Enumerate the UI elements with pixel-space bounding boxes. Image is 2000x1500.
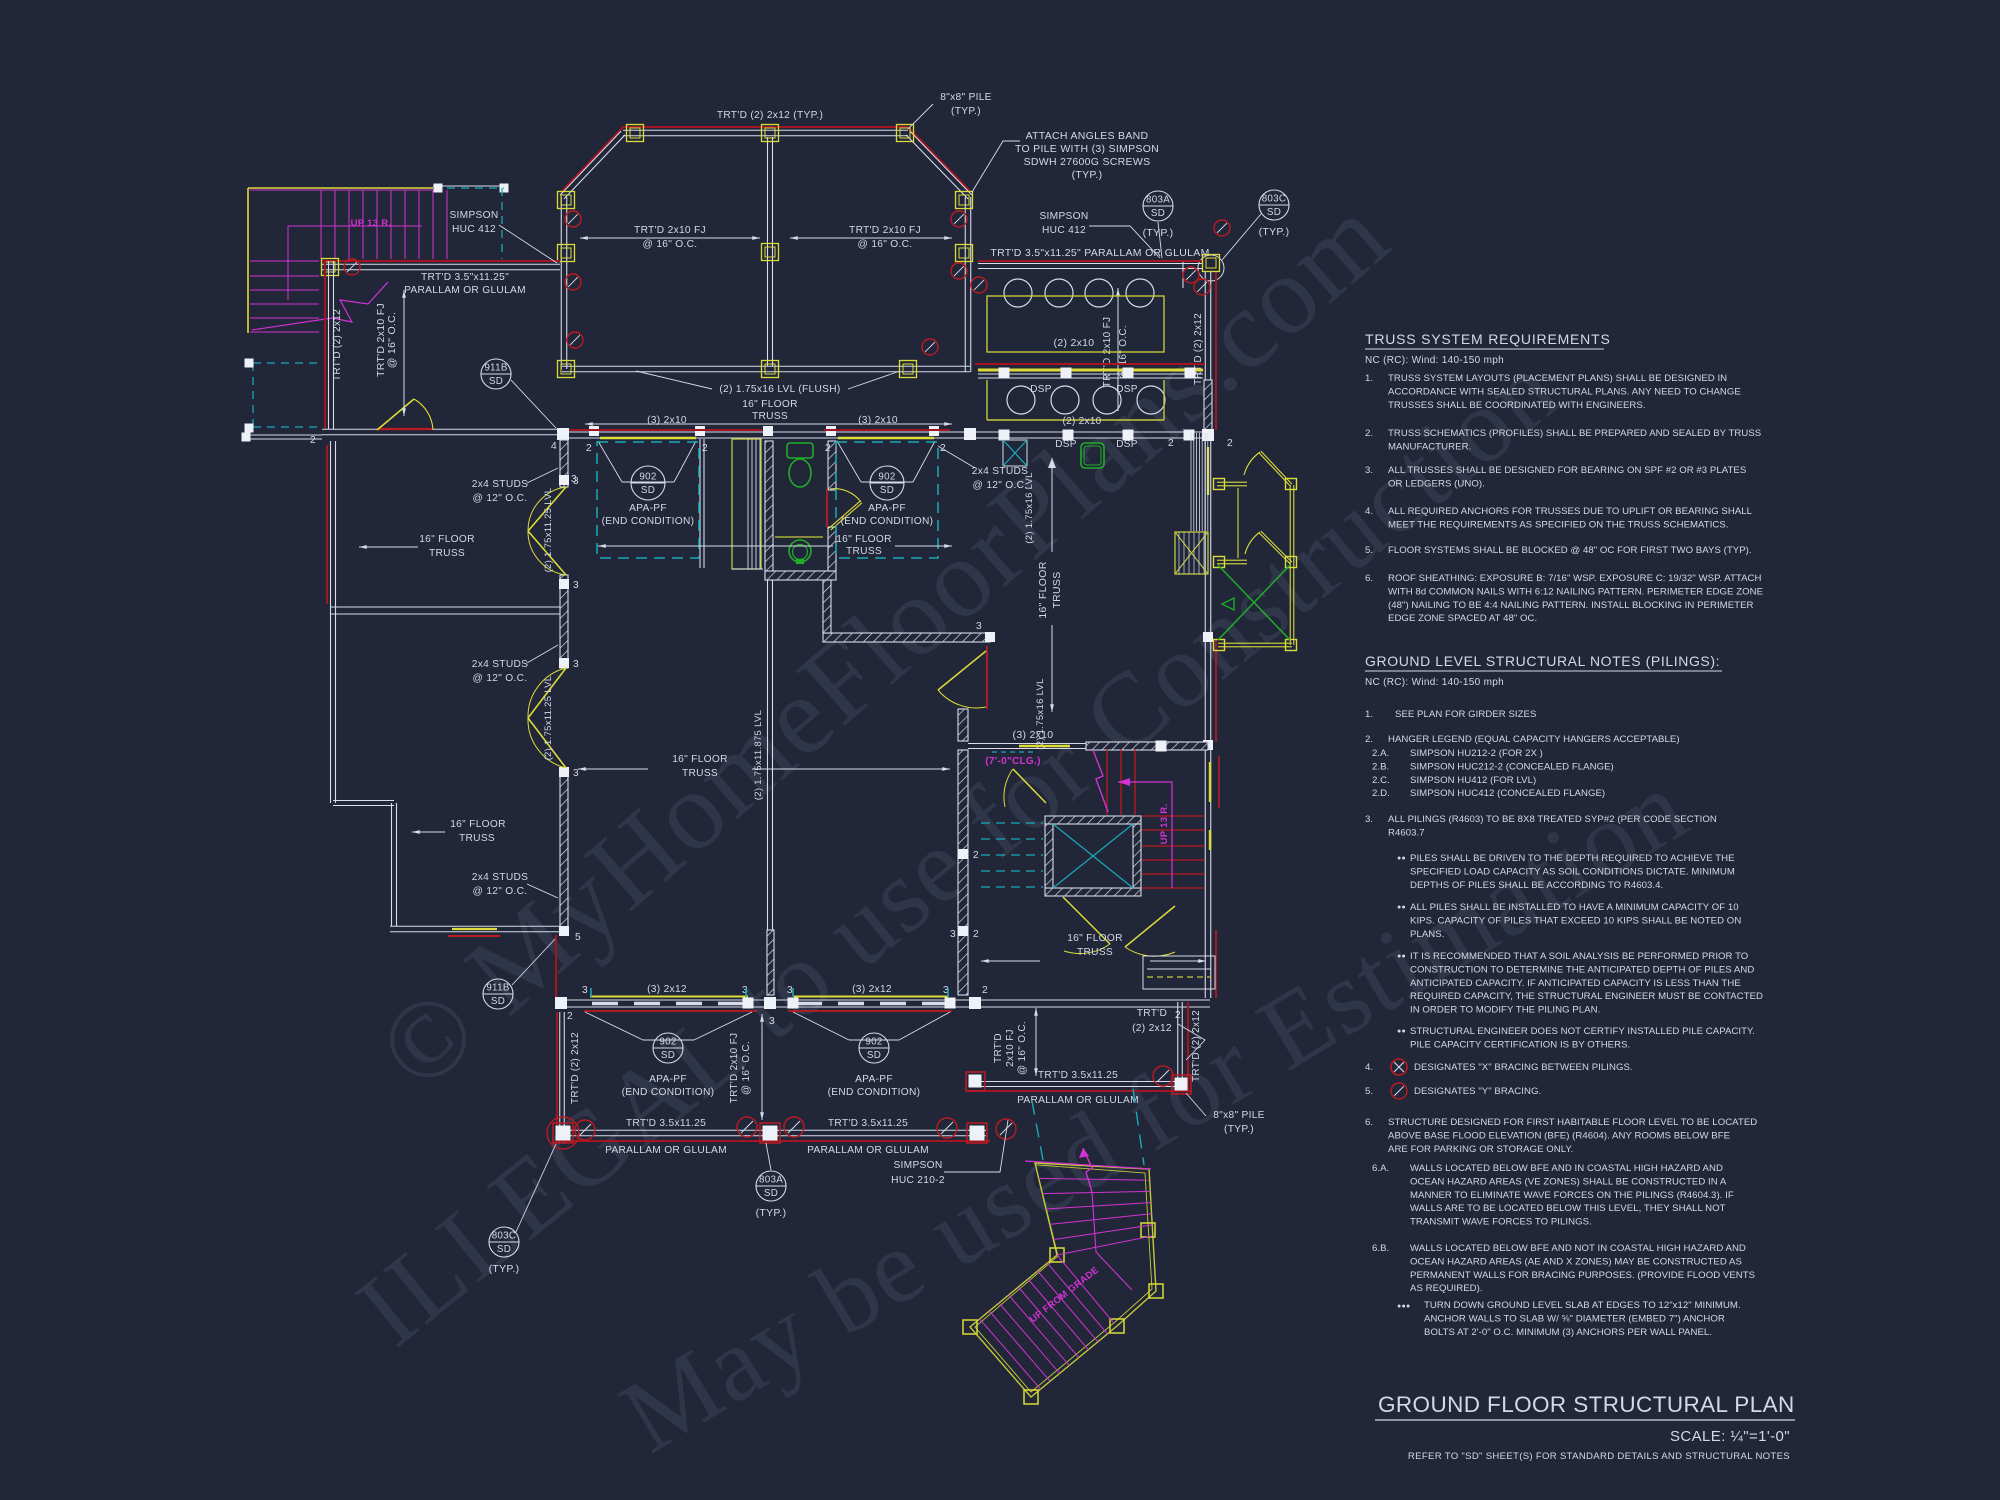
svg-text:STRUCTURE DESIGNED FOR FIRST H: STRUCTURE DESIGNED FOR FIRST HABITABLE F… — [1388, 1117, 1757, 1128]
svg-text:6.B.: 6.B. — [1372, 1243, 1389, 1254]
svg-text:SD: SD — [1267, 207, 1281, 218]
svg-text:2: 2 — [1227, 437, 1233, 449]
svg-text:TRUSS SCHEMATICS (PROFILES) SH: TRUSS SCHEMATICS (PROFILES) SHALL BE PRE… — [1388, 428, 1761, 439]
svg-text:902: 902 — [878, 472, 895, 483]
svg-text:TRUSS: TRUSS — [682, 768, 718, 779]
svg-text:4: 4 — [551, 440, 557, 452]
svg-text:TRUSS SYSTEM REQUIREMENTS: TRUSS SYSTEM REQUIREMENTS — [1365, 331, 1611, 347]
svg-text:●●: ●● — [1397, 855, 1406, 862]
svg-text:ALL TRUSSES SHALL BE DESIGNED: ALL TRUSSES SHALL BE DESIGNED FOR BEARIN… — [1388, 465, 1746, 476]
svg-text:6.: 6. — [1365, 1117, 1373, 1128]
svg-text:(TYP.): (TYP.) — [951, 106, 981, 117]
svg-text:3: 3 — [742, 984, 748, 996]
svg-text:2: 2 — [1175, 1009, 1181, 1021]
svg-text:(END CONDITION): (END CONDITION) — [828, 1087, 921, 1098]
svg-text:803C: 803C — [1262, 194, 1287, 205]
svg-text:8"x8" PILE: 8"x8" PILE — [940, 92, 992, 103]
svg-text:WALLS ARE TO BE LOCATED BELOW: WALLS ARE TO BE LOCATED BELOW THIS LEVEL… — [1410, 1203, 1726, 1214]
svg-text:OR LEDGERS (UNO).: OR LEDGERS (UNO). — [1388, 478, 1485, 489]
svg-text:APA-PF: APA-PF — [855, 1074, 893, 1085]
svg-text:ALL PILES SHALL BE INSTALLED T: ALL PILES SHALL BE INSTALLED TO HAVE A M… — [1410, 902, 1739, 913]
svg-text:ALL PILINGS (R4603) TO BE 8X8: ALL PILINGS (R4603) TO BE 8X8 TREATED SY… — [1388, 814, 1717, 825]
svg-text:SD: SD — [867, 1050, 881, 1061]
svg-text:PARALLAM OR GLULAM: PARALLAM OR GLULAM — [1017, 1095, 1139, 1106]
svg-text:(3) 2x10: (3) 2x10 — [1013, 729, 1054, 741]
svg-text:2.: 2. — [1365, 734, 1373, 745]
svg-text:16" FLOOR: 16" FLOOR — [1067, 933, 1123, 944]
svg-text:(2) 2x10: (2) 2x10 — [1054, 337, 1095, 349]
svg-text:(3) 2x12: (3) 2x12 — [647, 984, 687, 995]
svg-text:TRUSS: TRUSS — [1051, 571, 1063, 608]
svg-text:DSP: DSP — [1116, 439, 1137, 450]
svg-text:2: 2 — [310, 435, 316, 446]
svg-text:ABOVE BASE FLOOD ELEVATION (BF: ABOVE BASE FLOOD ELEVATION (BFE) (R4604)… — [1388, 1130, 1730, 1141]
svg-text:PARALLAM OR GLULAM: PARALLAM OR GLULAM — [404, 285, 526, 296]
svg-text:UP 13 R.: UP 13 R. — [351, 218, 392, 229]
svg-text:(TYP.): (TYP.) — [756, 1207, 787, 1219]
svg-text:GROUND LEVEL STRUCTURAL NOTES: GROUND LEVEL STRUCTURAL NOTES (PILINGS): — [1365, 653, 1720, 669]
svg-text:@ 12" O.C.: @ 12" O.C. — [473, 673, 528, 684]
svg-text:2: 2 — [1168, 437, 1174, 449]
svg-text:SD: SD — [661, 1050, 675, 1061]
svg-text:HUC 210-2: HUC 210-2 — [891, 1175, 945, 1186]
svg-text:●●: ●● — [1397, 953, 1406, 960]
svg-text:2.D.: 2.D. — [1372, 788, 1390, 799]
svg-text:TRT'D: TRT'D — [1137, 1008, 1167, 1019]
svg-text:@ 12" O.C.: @ 12" O.C. — [473, 493, 528, 504]
svg-text:3.: 3. — [1365, 465, 1373, 476]
svg-text:16" FLOOR: 16" FLOOR — [450, 819, 506, 830]
svg-text:2.C.: 2.C. — [1372, 775, 1390, 786]
svg-text:2x4 STUDS: 2x4 STUDS — [472, 872, 528, 883]
svg-text:ANTICIPATED CAPACITY. IF ANTIC: ANTICIPATED CAPACITY. IF ANTICIPATED CAP… — [1410, 978, 1741, 989]
svg-text:GROUND FLOOR STRUCTURAL PLAN: GROUND FLOOR STRUCTURAL PLAN — [1378, 1392, 1795, 1417]
svg-text:TRT'D 3.5x11.25: TRT'D 3.5x11.25 — [828, 1118, 908, 1129]
svg-text:TRT'D (2) 2x12 (TYP.): TRT'D (2) 2x12 (TYP.) — [717, 110, 823, 121]
svg-text:5.: 5. — [1365, 545, 1373, 556]
svg-text:2: 2 — [567, 1010, 573, 1022]
svg-text:CONSTRUCTION TO DETERMINE THE: CONSTRUCTION TO DETERMINE THE ANTICIPATE… — [1410, 964, 1754, 975]
svg-text:EDGE ZONE SPACED AT 48" OC.: EDGE ZONE SPACED AT 48" OC. — [1388, 613, 1537, 624]
svg-text:902: 902 — [639, 472, 656, 483]
svg-text:KIPS. CAPACITY OF PILES THAT E: KIPS. CAPACITY OF PILES THAT EXCEED 10 K… — [1410, 915, 1741, 926]
svg-text:2: 2 — [586, 442, 592, 454]
svg-text:4.: 4. — [1365, 1062, 1373, 1073]
svg-text:SD: SD — [1151, 208, 1165, 219]
svg-text:PARALLAM OR GLULAM: PARALLAM OR GLULAM — [807, 1145, 929, 1156]
svg-text:@ 16" O.C.: @ 16" O.C. — [741, 1041, 752, 1095]
svg-text:SD: SD — [491, 996, 505, 1007]
svg-text:2.: 2. — [1365, 428, 1373, 439]
svg-text:SCALE: ¼"=1'-0": SCALE: ¼"=1'-0" — [1670, 1428, 1790, 1445]
svg-text:SD: SD — [641, 485, 655, 496]
svg-text:(END CONDITION): (END CONDITION) — [622, 1087, 715, 1098]
svg-text:TRUSS: TRUSS — [459, 833, 495, 844]
svg-text:911B: 911B — [486, 983, 510, 994]
svg-text:SD: SD — [764, 1188, 778, 1199]
svg-text:SIMPSON HUC412 (CONCEALED FLAN: SIMPSON HUC412 (CONCEALED FLANGE) — [1410, 788, 1605, 799]
svg-text:SPECIFIED LOAD CAPACITY AS SOI: SPECIFIED LOAD CAPACITY AS SOIL CONDITIO… — [1410, 866, 1735, 877]
svg-text:16" FLOOR: 16" FLOOR — [836, 534, 892, 545]
svg-text:SD: SD — [497, 1244, 511, 1255]
svg-text:3: 3 — [769, 1015, 775, 1027]
svg-text:SEE PLAN FOR GIRDER SIZES: SEE PLAN FOR GIRDER SIZES — [1395, 709, 1536, 720]
svg-text:FLOOR SYSTEMS SHALL BE BLOCKED: FLOOR SYSTEMS SHALL BE BLOCKED @ 48" OC … — [1388, 545, 1752, 556]
svg-text:5.: 5. — [1365, 1086, 1373, 1097]
svg-text:2: 2 — [940, 442, 946, 454]
svg-text:●●: ●● — [1397, 1028, 1406, 1035]
svg-text:2.B.: 2.B. — [1372, 761, 1389, 772]
svg-text:6.A.: 6.A. — [1372, 1163, 1389, 1174]
svg-text:@ 12" O.C.: @ 12" O.C. — [973, 480, 1028, 491]
svg-text:MANUFACTURER.: MANUFACTURER. — [1388, 441, 1471, 452]
svg-text:(2) 1.75x11.25 LVL: (2) 1.75x11.25 LVL — [543, 488, 554, 573]
svg-text:2: 2 — [702, 442, 708, 454]
svg-text:TO PILE WITH (3) SIMPSON: TO PILE WITH (3) SIMPSON — [1015, 143, 1159, 155]
svg-text:SD: SD — [489, 376, 503, 387]
svg-text:●●: ●● — [1397, 904, 1406, 911]
svg-text:TRT'D 3.5x11.25: TRT'D 3.5x11.25 — [626, 1118, 706, 1129]
svg-text:TRT'D (2) 2x12: TRT'D (2) 2x12 — [332, 309, 343, 381]
svg-text:911B: 911B — [484, 363, 508, 374]
svg-text:TRT'D 2x10 FJ: TRT'D 2x10 FJ — [849, 225, 921, 236]
svg-text:SIMPSON HUC212-2 (CONCEALED FL: SIMPSON HUC212-2 (CONCEALED FLANGE) — [1410, 761, 1614, 772]
svg-text:IN ORDER TO MODIFY THE PILING: IN ORDER TO MODIFY THE PILING PLAN. — [1410, 1005, 1600, 1016]
svg-text:(3) 2x10: (3) 2x10 — [647, 415, 687, 426]
svg-text:PERMANENT WALLS FOR BRACING PU: PERMANENT WALLS FOR BRACING PURPOSES. (P… — [1410, 1270, 1755, 1281]
svg-text:TRUSS: TRUSS — [1077, 947, 1113, 958]
svg-text:TRUSS SYSTEM LAYOUTS (PLACEMEN: TRUSS SYSTEM LAYOUTS (PLACEMENT PLANS) S… — [1388, 373, 1727, 384]
svg-text:803C: 803C — [492, 1231, 517, 1242]
svg-text:PILE CAPACITY CERTIFICATION IS: PILE CAPACITY CERTIFICATION IS BY OTHERS… — [1410, 1039, 1630, 1050]
svg-text:(2) 1.75x11.25 LVL: (2) 1.75x11.25 LVL — [543, 676, 554, 761]
svg-text:MEET THE REQUIREMENTS AS SPEC: MEET THE REQUIREMENTS AS SPECIFIED ON TH… — [1388, 519, 1729, 530]
svg-text:AS REQUIRED).: AS REQUIRED). — [1410, 1283, 1483, 1294]
svg-text:SIMPSON HU212-2 (FOR 2X ): SIMPSON HU212-2 (FOR 2X ) — [1410, 748, 1543, 759]
svg-text:16" FLOOR: 16" FLOOR — [1037, 561, 1049, 618]
svg-text:SDWH 27600G SCREWS: SDWH 27600G SCREWS — [1024, 156, 1151, 168]
svg-text:2: 2 — [973, 928, 979, 940]
svg-text:2.A.: 2.A. — [1372, 748, 1389, 759]
svg-text:(7'-0"CLG.): (7'-0"CLG.) — [985, 756, 1040, 767]
svg-text:(TYP.): (TYP.) — [1224, 1124, 1254, 1135]
svg-text:6.: 6. — [1365, 573, 1373, 584]
svg-text:PILES SHALL BE DRIVEN TO THE D: PILES SHALL BE DRIVEN TO THE DEPTH REQUI… — [1410, 853, 1735, 864]
svg-text:WALLS LOCATED BELOW BFE AND NO: WALLS LOCATED BELOW BFE AND NOT IN COAST… — [1410, 1243, 1746, 1254]
svg-text:(2) 2x12: (2) 2x12 — [1132, 1023, 1172, 1034]
svg-text:902: 902 — [659, 1037, 676, 1048]
svg-text:3: 3 — [787, 984, 793, 996]
svg-text:SIMPSON: SIMPSON — [449, 210, 498, 221]
svg-text:(TYP.): (TYP.) — [1143, 227, 1174, 239]
svg-text:DEPTHS OF PILES SHALL BE ACCOR: DEPTHS OF PILES SHALL BE ACCORDING TO R4… — [1410, 880, 1663, 891]
svg-text:TRUSS: TRUSS — [429, 548, 465, 559]
svg-text:@ 16" O.C.: @ 16" O.C. — [858, 239, 913, 250]
svg-text:1.: 1. — [1365, 709, 1373, 720]
svg-text:APA-PF: APA-PF — [868, 503, 906, 514]
svg-text:3.: 3. — [1365, 814, 1373, 825]
svg-text:TRUSS: TRUSS — [752, 411, 788, 422]
svg-text:3: 3 — [582, 984, 588, 996]
svg-text:TRANSMIT WAVE FORCES TO PILIN: TRANSMIT WAVE FORCES TO PILINGS. — [1410, 1217, 1592, 1228]
svg-text:SIMPSON HU412 (FOR LVL): SIMPSON HU412 (FOR LVL) — [1410, 775, 1536, 786]
svg-text:ANCHOR WALLS TO SLAB W/ ⅝" DIA: ANCHOR WALLS TO SLAB W/ ⅝" DIAMETER (EMB… — [1424, 1313, 1725, 1324]
svg-text:TRUSS: TRUSS — [846, 546, 882, 557]
svg-text:(2) 1.75x16 LVL (FLUSH): (2) 1.75x16 LVL (FLUSH) — [719, 384, 840, 395]
svg-text:REQUIRED CAPACITY, THE STRUCTU: REQUIRED CAPACITY, THE STRUCTURAL ENGINE… — [1410, 991, 1763, 1002]
svg-text:(2) 1.75x11.875 LVL: (2) 1.75x11.875 LVL — [753, 710, 764, 800]
svg-text:ARE FOR PARKING OR STORAGE ONL: ARE FOR PARKING OR STORAGE ONLY. — [1388, 1144, 1573, 1155]
svg-text:3: 3 — [950, 928, 956, 940]
svg-text:16" FLOOR: 16" FLOOR — [672, 754, 728, 765]
svg-text:@ 16" O.C.: @ 16" O.C. — [386, 312, 398, 368]
svg-text:8"x8" PILE: 8"x8" PILE — [1213, 1110, 1265, 1121]
svg-text:16" FLOOR: 16" FLOOR — [419, 534, 475, 545]
svg-text:2: 2 — [825, 442, 831, 454]
svg-text:NC (RC): Wind: 140-150 mph: NC (RC): Wind: 140-150 mph — [1365, 677, 1504, 688]
svg-text:902: 902 — [865, 1037, 882, 1048]
svg-text:2: 2 — [982, 984, 988, 996]
svg-text:@ 16" O.C.: @ 16" O.C. — [643, 239, 698, 250]
svg-text:SIMPSON: SIMPSON — [1039, 211, 1088, 222]
svg-text:803A: 803A — [759, 1175, 783, 1186]
svg-text:TURN DOWN GROUND LEVEL SLAB AT: TURN DOWN GROUND LEVEL SLAB AT EDGES TO … — [1424, 1300, 1741, 1311]
svg-text:(TYP.): (TYP.) — [489, 1263, 520, 1275]
svg-text:1.: 1. — [1365, 373, 1373, 384]
svg-text:@ 12" O.C.: @ 12" O.C. — [473, 886, 528, 897]
svg-text:ATTACH ANGLES BAND: ATTACH ANGLES BAND — [1026, 130, 1149, 142]
svg-text:DESIGNATES "Y" BRACING.: DESIGNATES "Y" BRACING. — [1414, 1086, 1541, 1097]
svg-text:R4603.7: R4603.7 — [1388, 827, 1425, 838]
svg-text:OCEAN HAZARD AREAS (VE ZONES): OCEAN HAZARD AREAS (VE ZONES) SHALL BE C… — [1410, 1176, 1727, 1187]
svg-text:2x4 STUDS: 2x4 STUDS — [972, 466, 1028, 477]
svg-text:DESIGNATES "X" BRACING BETWEEN: DESIGNATES "X" BRACING BETWEEN PILINGS. — [1414, 1062, 1633, 1073]
svg-text:WALLS LOCATED BELOW BFE AND IN: WALLS LOCATED BELOW BFE AND IN COASTAL H… — [1410, 1163, 1723, 1174]
svg-text:MANNER TO ELIMINATE WAVE FORCE: MANNER TO ELIMINATE WAVE FORCES ON THE P… — [1410, 1190, 1734, 1201]
svg-text:4.: 4. — [1365, 506, 1373, 517]
svg-text:(2) 1.75x16 LVL: (2) 1.75x16 LVL — [1024, 472, 1035, 543]
svg-text:(TYP.): (TYP.) — [1259, 226, 1290, 238]
svg-text:@ 16" O.C.: @ 16" O.C. — [1017, 1021, 1028, 1075]
svg-text:SIMPSON: SIMPSON — [893, 1160, 942, 1171]
svg-text:(TYP.): (TYP.) — [1072, 169, 1103, 181]
svg-text:TRT'D (2) 2x12: TRT'D (2) 2x12 — [570, 1032, 581, 1104]
svg-text:TRT'D 3.5"x11.25" PARALLAM OR: TRT'D 3.5"x11.25" PARALLAM OR GLULAM — [990, 247, 1209, 259]
svg-text:TRT'D: TRT'D — [993, 1033, 1004, 1063]
svg-text:2x10 FJ: 2x10 FJ — [1005, 1029, 1016, 1067]
svg-text:(END CONDITION): (END CONDITION) — [602, 516, 695, 527]
svg-text:(48") NAILING TO BE 4:4 NAILIN: (48") NAILING TO BE 4:4 NAILING PATTERN.… — [1388, 600, 1754, 611]
svg-text:HUC 412: HUC 412 — [1042, 225, 1086, 236]
svg-text:UP 13 R.: UP 13 R. — [1159, 804, 1170, 845]
svg-text:(3) 2x12: (3) 2x12 — [852, 984, 892, 995]
svg-text:16" FLOOR: 16" FLOOR — [742, 399, 798, 410]
svg-text:IT IS RECOMMENDED THAT A SOIL: IT IS RECOMMENDED THAT A SOIL ANALYSIS B… — [1410, 951, 1748, 962]
svg-text:SD: SD — [880, 485, 894, 496]
svg-text:TRT'D (2) 2x12: TRT'D (2) 2x12 — [1191, 1010, 1202, 1082]
svg-text:ACCORDANCE WITH SEALED STRUCTU: ACCORDANCE WITH SEALED STRUCTURAL PLANS.… — [1388, 386, 1741, 397]
svg-text:OCEAN HAZARD AREAS (AE AND X Z: OCEAN HAZARD AREAS (AE AND X ZONES) MAY … — [1410, 1256, 1742, 1267]
svg-text:(3) 2x10: (3) 2x10 — [858, 415, 898, 426]
svg-text:STRUCTURAL ENGINEER DOES NOT C: STRUCTURAL ENGINEER DOES NOT CERTIFY INS… — [1410, 1026, 1755, 1037]
svg-text:5: 5 — [575, 932, 581, 943]
svg-text:TRT'D 2x10 FJ: TRT'D 2x10 FJ — [634, 225, 706, 236]
svg-text:DSP: DSP — [1055, 439, 1076, 450]
svg-text:ALL REQUIRED ANCHORS FOR TRUSS: ALL REQUIRED ANCHORS FOR TRUSSES DUE TO … — [1388, 506, 1753, 517]
svg-text:BOLTS AT 2'-0" O.C. MINIMUM (3: BOLTS AT 2'-0" O.C. MINIMUM (3) ANCHORS … — [1424, 1327, 1712, 1338]
svg-text:REFER TO "SD" SHEET(S) FOR STA: REFER TO "SD" SHEET(S) FOR STANDARD DETA… — [1408, 1451, 1790, 1462]
svg-text:ROOF SHEATHING: EXPOSURE B: 7/: ROOF SHEATHING: EXPOSURE B: 7/16" WSP. E… — [1388, 573, 1762, 584]
svg-text:(END CONDITION): (END CONDITION) — [841, 516, 934, 527]
svg-text:3: 3 — [571, 473, 577, 485]
svg-text:HUC 412: HUC 412 — [452, 224, 496, 235]
svg-text:3: 3 — [573, 659, 579, 670]
svg-text:NC (RC): Wind: 140-150 mph: NC (RC): Wind: 140-150 mph — [1365, 355, 1504, 366]
svg-text:3: 3 — [573, 580, 579, 591]
svg-text:WITH 8d COMMON NAILS WITH 6:12: WITH 8d COMMON NAILS WITH 6:12 NAILING P… — [1388, 586, 1763, 597]
svg-text:(2) 2x10: (2) 2x10 — [1062, 416, 1101, 427]
svg-text:TRT'D 3.5"x11.25": TRT'D 3.5"x11.25" — [421, 272, 509, 283]
svg-text:PARALLAM OR GLULAM: PARALLAM OR GLULAM — [605, 1145, 727, 1156]
svg-text:APA-PF: APA-PF — [649, 1074, 687, 1085]
svg-text:2: 2 — [973, 849, 979, 861]
svg-text:3: 3 — [573, 768, 579, 779]
svg-text:3: 3 — [976, 620, 982, 632]
svg-text:2x4 STUDS: 2x4 STUDS — [472, 479, 528, 490]
svg-text:HANGER LEGEND (EQUAL CAPACITY: HANGER LEGEND (EQUAL CAPACITY HANGERS AC… — [1388, 734, 1680, 745]
svg-text:●●●: ●●● — [1397, 1303, 1411, 1310]
svg-text:2x4 STUDS: 2x4 STUDS — [472, 659, 528, 670]
svg-text:TRT'D 3.5x11.25: TRT'D 3.5x11.25 — [1038, 1070, 1118, 1081]
svg-text:PLANS.: PLANS. — [1410, 929, 1444, 940]
svg-text:TRUSSES SHALL BE COORDINATED: TRUSSES SHALL BE COORDINATED WITH ENGINE… — [1388, 400, 1646, 411]
svg-text:APA-PF: APA-PF — [629, 503, 667, 514]
svg-text:TRT'D 2x10 FJ: TRT'D 2x10 FJ — [729, 1033, 740, 1104]
svg-text:803A: 803A — [1146, 195, 1170, 206]
